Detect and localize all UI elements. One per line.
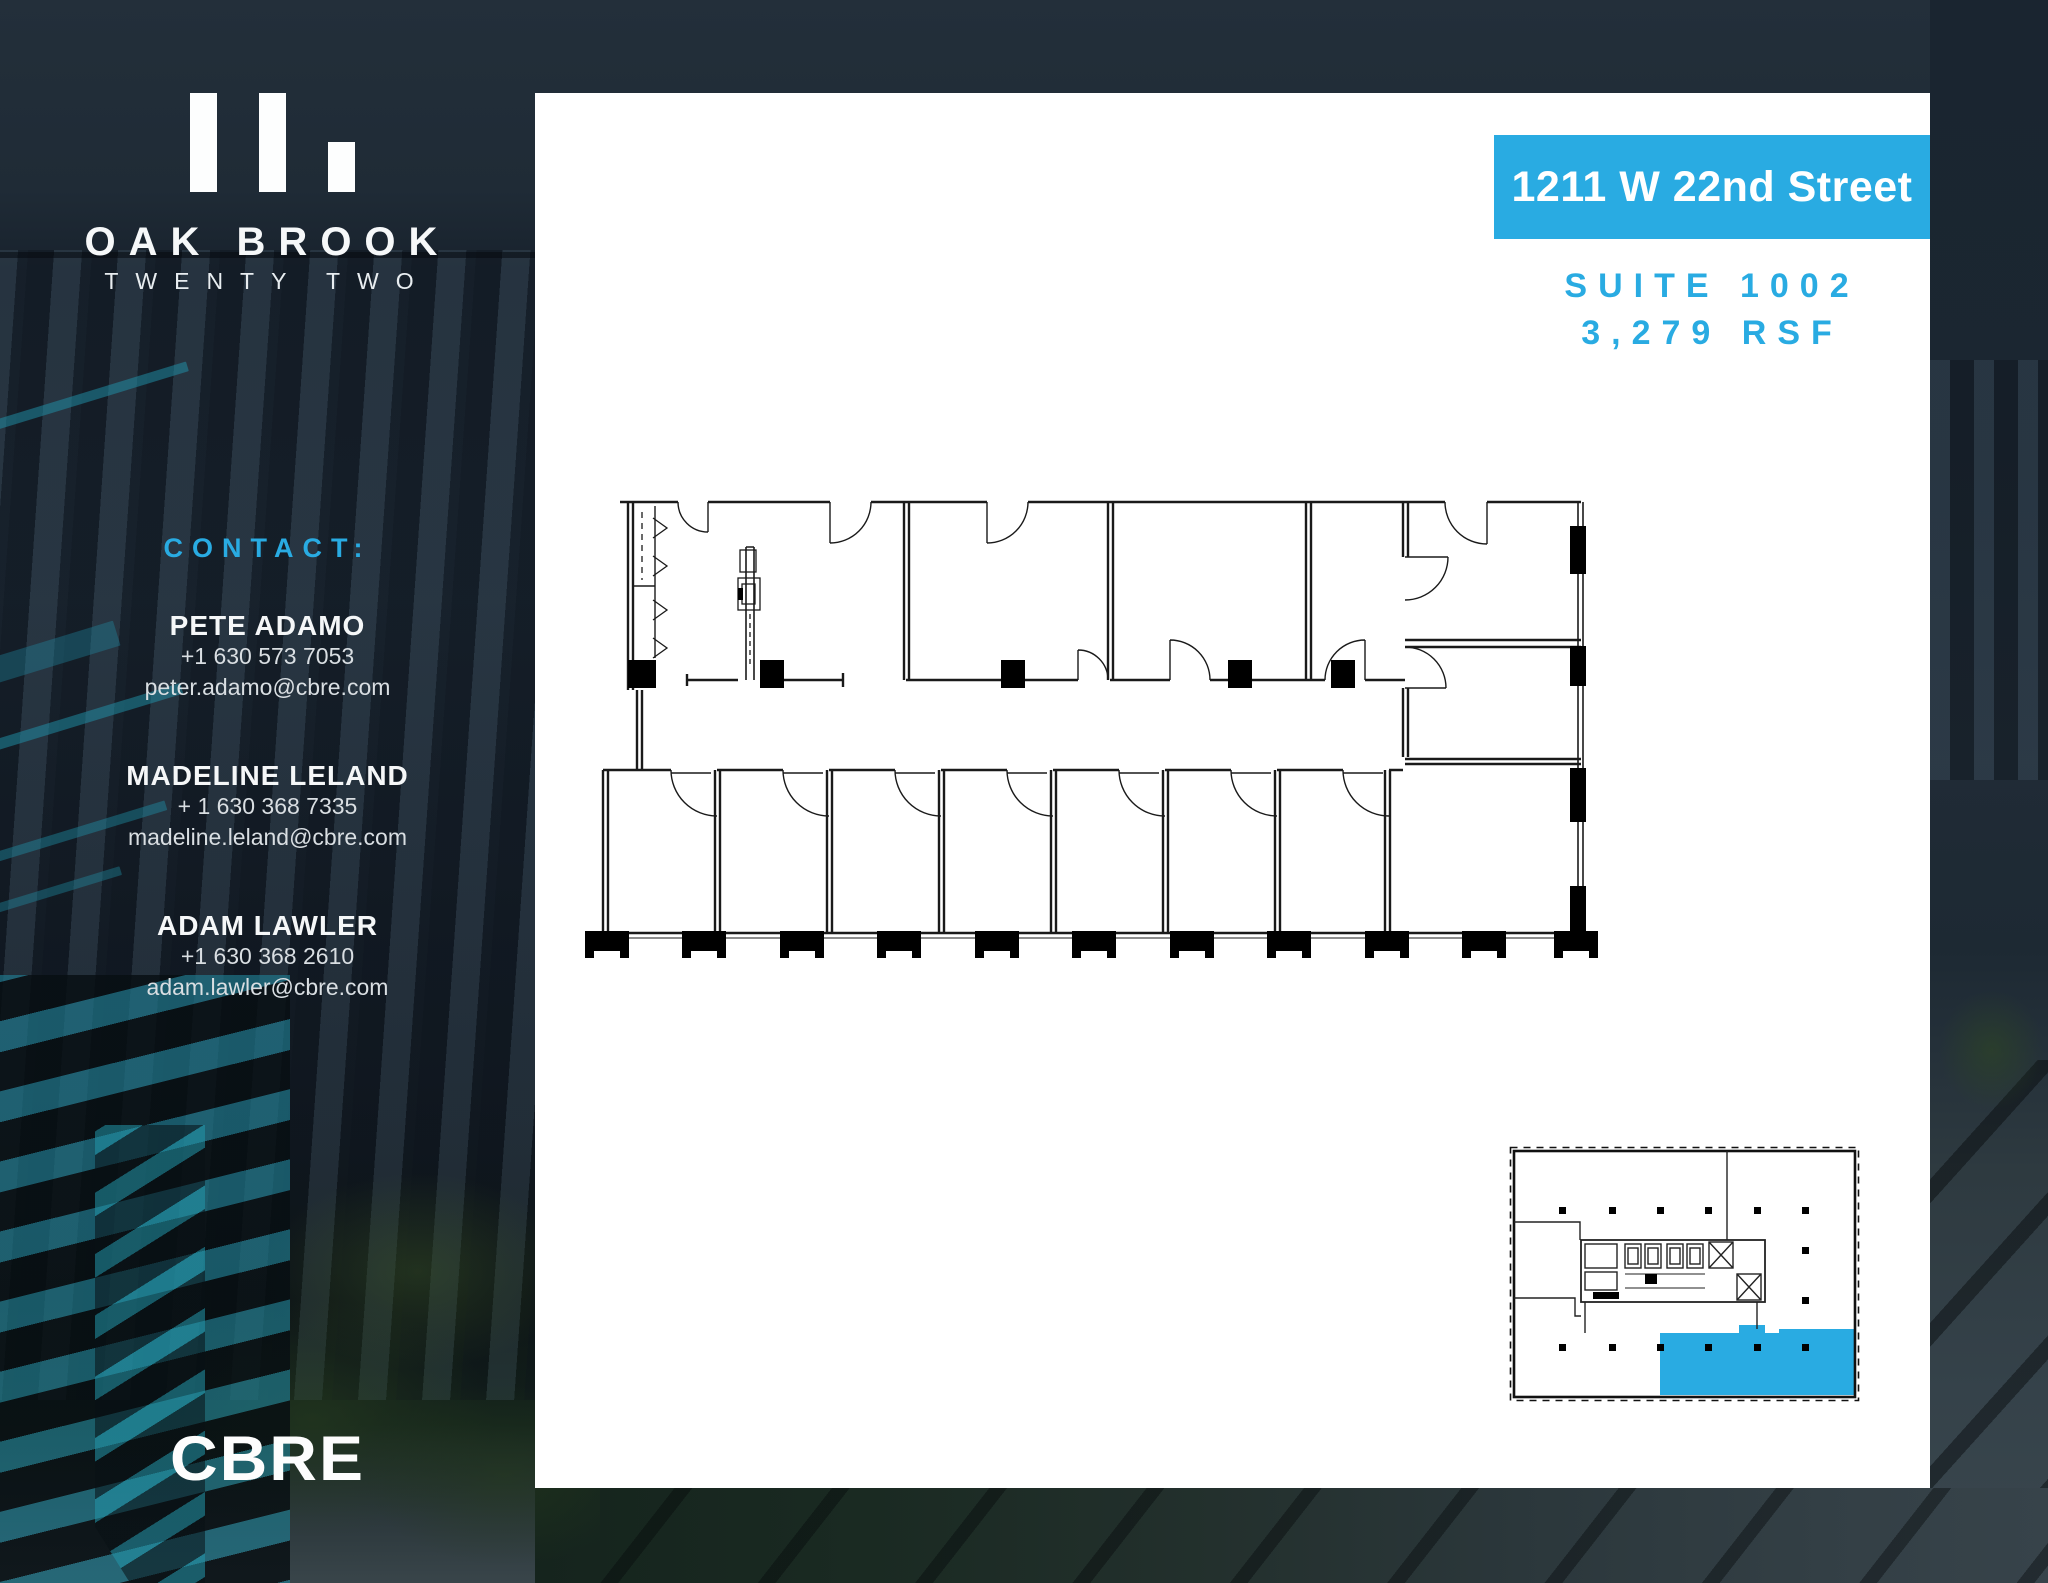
sidebar: OAK BROOK TWENTY TWO CONTACT: PETE ADAMO… xyxy=(0,0,535,1583)
background-trees-right xyxy=(1935,960,2048,1140)
content-panel: 1211 W 22nd Street SUITE 1002 3,279 RSF xyxy=(535,93,1930,1488)
background-right-building xyxy=(1930,360,2048,780)
contact-card: MADELINE LELAND + 1 630 368 7335 madelin… xyxy=(0,760,535,853)
cbre-logo: CBRE xyxy=(0,1422,535,1495)
key-plan-columns xyxy=(1559,1207,1809,1351)
floor-plan-svg xyxy=(580,492,1600,970)
floor-plan xyxy=(580,492,1600,970)
contact-card: PETE ADAMO +1 630 573 7053 peter.adamo@c… xyxy=(0,610,535,703)
address-text: 1211 W 22nd Street xyxy=(1512,163,1913,212)
contact-heading: CONTACT: xyxy=(0,533,535,564)
brand-name: OAK BROOK xyxy=(0,220,535,265)
suite-area: 3,279 RSF xyxy=(1494,310,1930,357)
brand-subtitle: TWENTY TWO xyxy=(0,268,535,295)
key-plan-core xyxy=(1514,1151,1765,1333)
key-plan-core-fills xyxy=(1593,1274,1657,1299)
contact-phone: + 1 630 368 7335 xyxy=(0,791,535,822)
suite-highlight-region xyxy=(1660,1325,1856,1395)
address-banner: 1211 W 22nd Street xyxy=(1494,135,1930,239)
logo-bar xyxy=(259,93,286,192)
background-road-bottom xyxy=(535,1488,2048,1583)
contact-card: ADAM LAWLER +1 630 368 2610 adam.lawler@… xyxy=(0,910,535,1003)
contact-phone: +1 630 573 7053 xyxy=(0,641,535,672)
contact-email: madeline.leland@cbre.com xyxy=(0,822,535,853)
contact-email: adam.lawler@cbre.com xyxy=(0,972,535,1003)
contact-email: peter.adamo@cbre.com xyxy=(0,672,535,703)
key-plan-svg xyxy=(1509,1146,1860,1402)
contact-phone: +1 630 368 2610 xyxy=(0,941,535,972)
key-plan xyxy=(1509,1146,1860,1402)
suite-info: SUITE 1002 3,279 RSF xyxy=(1494,263,1930,357)
contact-name: ADAM LAWLER xyxy=(0,910,535,941)
contact-name: PETE ADAMO xyxy=(0,610,535,641)
contact-name: MADELINE LELAND xyxy=(0,760,535,791)
logo-bar xyxy=(328,142,355,192)
plan-walls xyxy=(585,502,1583,938)
oak-brook-logo-mark-icon xyxy=(190,93,355,192)
logo-bar xyxy=(190,93,217,192)
flyer-page: OAK BROOK TWENTY TWO CONTACT: PETE ADAMO… xyxy=(0,0,2048,1583)
plan-columns xyxy=(585,526,1598,958)
suite-name: SUITE 1002 xyxy=(1494,263,1930,310)
